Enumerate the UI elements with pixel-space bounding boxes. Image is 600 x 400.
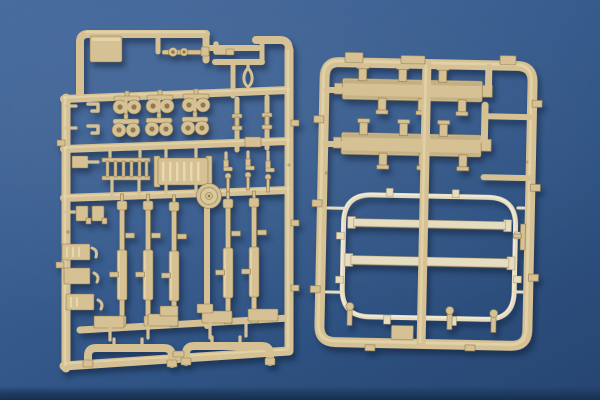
bottom-tab-part <box>391 325 413 339</box>
slatted-board-part-2 <box>333 118 492 171</box>
frame-cross-bar-1 <box>347 216 511 231</box>
hook-parts <box>66 104 98 133</box>
frame-cross-bar-2 <box>345 253 515 270</box>
teardrop-shackle-part <box>244 62 252 87</box>
frame-nub <box>336 232 344 239</box>
suspension-rod-parts <box>110 191 267 327</box>
right-sprue <box>309 52 543 355</box>
table-edge-shadow <box>0 386 600 400</box>
corner-block-part <box>90 36 122 62</box>
frame-nub <box>513 276 521 283</box>
frame-nub <box>335 276 343 283</box>
ejector-mark <box>66 230 70 234</box>
boot-bracket-parts <box>224 152 275 172</box>
sprue-photo <box>0 0 600 400</box>
slatted-board-part-1 <box>334 64 493 116</box>
ejector-mark <box>287 163 290 166</box>
ladder-grille-part <box>102 149 150 196</box>
left-sprue <box>56 32 299 368</box>
frame-nub <box>386 188 393 196</box>
ringed-rod-part <box>162 47 209 57</box>
small-box-part <box>72 156 98 168</box>
frame-nub <box>383 315 390 324</box>
eyelet-pair-row2 <box>112 97 209 137</box>
sprue-photo-canvas <box>0 0 600 400</box>
round-disc-part <box>197 184 222 209</box>
frame-nub <box>452 190 459 198</box>
